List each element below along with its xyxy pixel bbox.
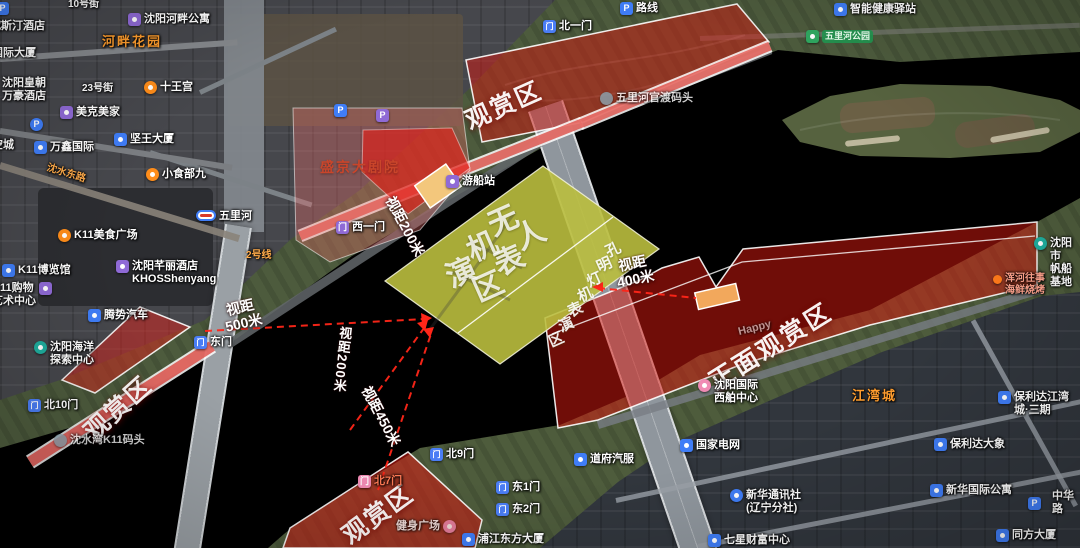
annotation-overlay bbox=[0, 0, 1080, 548]
distance-prefix: 视距 bbox=[335, 325, 353, 354]
island-path bbox=[800, 113, 1060, 130]
map-canvas: 观赏区 观赏区 观赏区 正面观赏区 盛京大剧院 无 人 机 表 演 区 孔 明 … bbox=[0, 0, 1080, 548]
theater-label: 盛京大剧院 bbox=[320, 157, 400, 177]
viewing-zone-north bbox=[466, 4, 769, 142]
